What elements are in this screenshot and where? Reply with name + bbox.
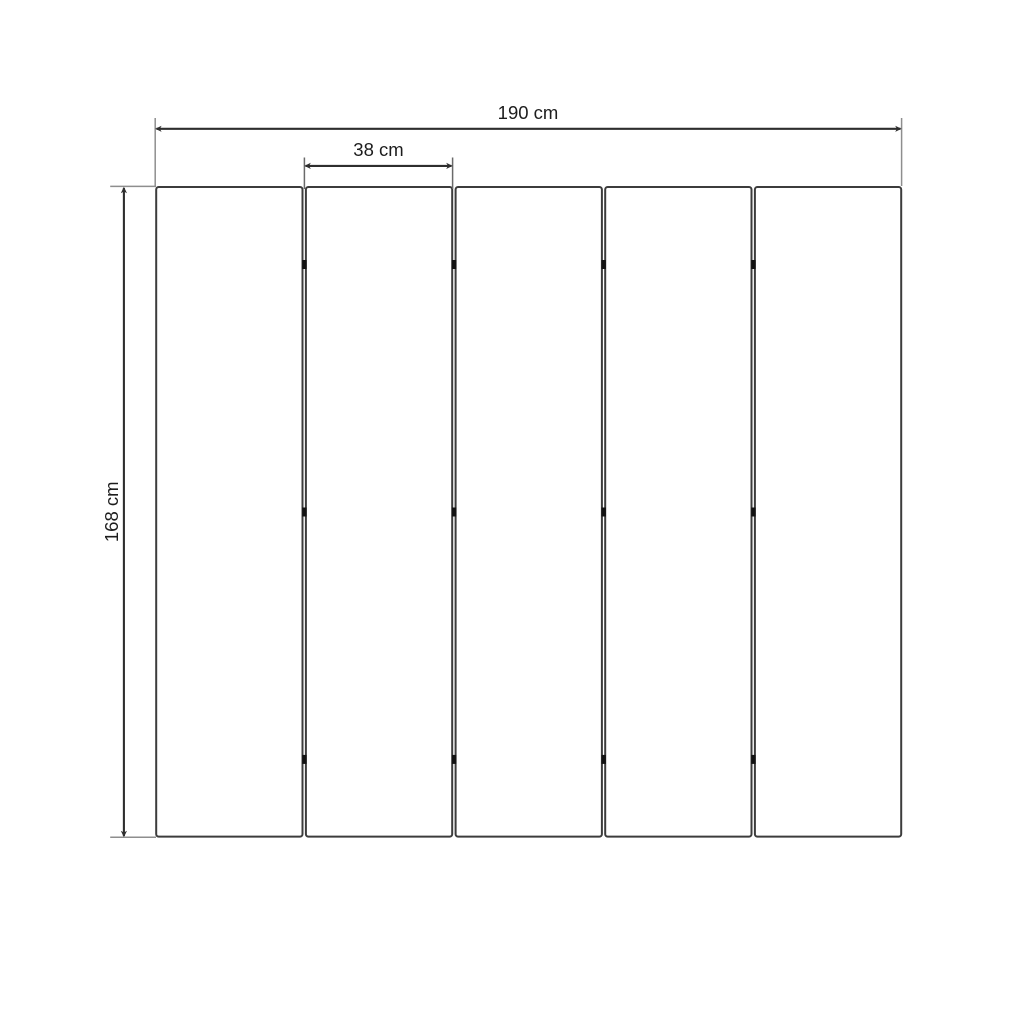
svg-text:190 cm: 190 cm <box>498 102 559 123</box>
svg-text:168 cm: 168 cm <box>101 481 122 542</box>
svg-text:38 cm: 38 cm <box>353 139 403 160</box>
